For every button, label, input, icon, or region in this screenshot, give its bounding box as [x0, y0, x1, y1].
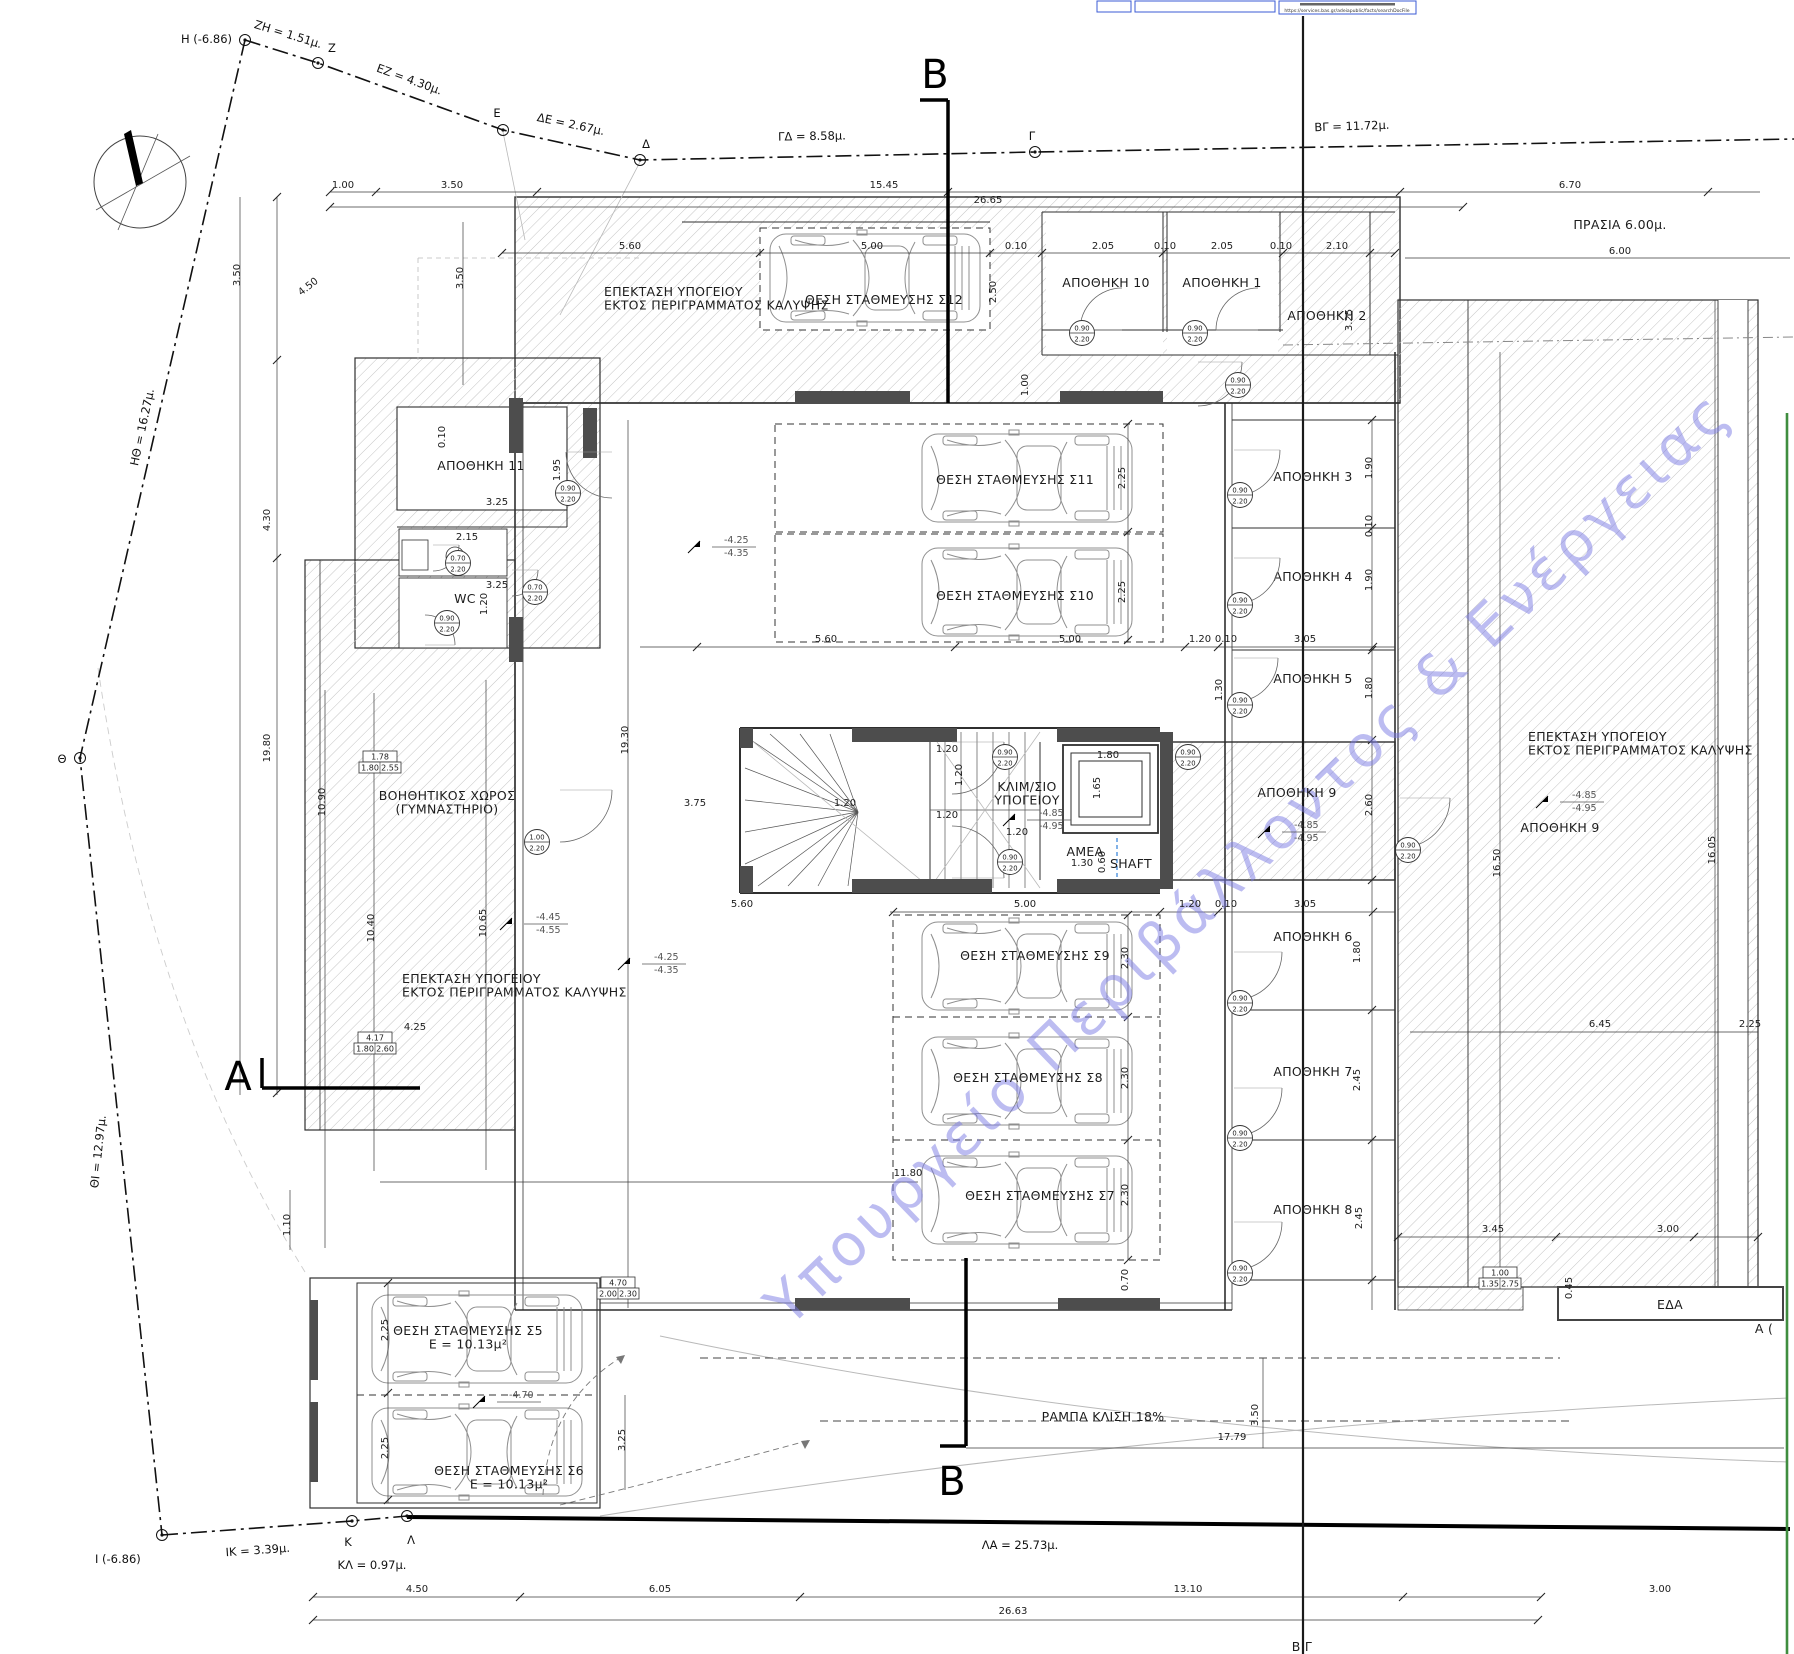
dim-text: 2.45	[1354, 1207, 1365, 1229]
level-bottom-value: -4.55	[536, 925, 561, 936]
room-label-line: ΑΠΟΘΗΚΗ 9	[1520, 820, 1599, 835]
room-label-line: ΑΠΟΘΗΚΗ 1	[1182, 275, 1261, 290]
door-width-value: 0.90	[997, 749, 1012, 757]
boundary-point-H: H (-6.86)	[181, 32, 251, 46]
door-width-value: 1.00	[529, 834, 544, 842]
window-length-value: 1.78	[371, 753, 389, 762]
dim-text: 1.20	[1006, 827, 1028, 838]
room-label-line: ΑΠΟΘΗΚΗ 7	[1273, 1064, 1352, 1079]
dim-text: 4.25	[404, 1022, 426, 1033]
door-width-value: 0.90	[1230, 377, 1245, 385]
boundary-point-dot	[501, 128, 504, 131]
boundary-point-Κ: Κ	[344, 1516, 357, 1550]
boundary-point-dot	[160, 1533, 163, 1536]
dim-text: 0.70	[1120, 1269, 1131, 1291]
dim-text: 1.20	[954, 764, 965, 786]
dim-text: 5.60	[619, 241, 641, 252]
room-label-apothiki-9-right: ΑΠΟΘΗΚΗ 9	[1520, 820, 1599, 835]
level-mark: -4.25-4.35	[688, 535, 756, 559]
dim-text: 11.80	[894, 1168, 923, 1179]
window-sill-value: 1.80	[356, 1045, 374, 1054]
boundary-la-thick	[407, 1517, 1790, 1529]
door-width-value: 0.90	[439, 615, 454, 623]
stamp-url[interactable]: https://services.bas.gr/adeiapublic/fact…	[1284, 8, 1409, 14]
dim-text: 26.65	[974, 195, 1003, 206]
door-width-value: 0.90	[1232, 1265, 1247, 1273]
door-height-value: 2.20	[1232, 608, 1247, 616]
section-letter: Α	[224, 1054, 252, 1100]
dim-text: 10.40	[366, 914, 377, 943]
room-label-line: Β Γ	[1292, 1639, 1312, 1654]
door-tag: 0.902.20	[1228, 1088, 1283, 1151]
door-swing-arc	[560, 790, 612, 842]
dim-text: 4.50	[296, 276, 320, 298]
dim-text: 3.25	[486, 497, 508, 508]
level-top-value: -4.85	[1039, 808, 1064, 819]
boundary-point-label: Κ	[344, 1535, 352, 1549]
room-label-line: ΑΠΟΘΗΚΗ 4	[1273, 569, 1352, 584]
door-height-value: 2.20	[1232, 708, 1247, 716]
dim-text: 3.50	[1250, 1404, 1261, 1426]
door-width-value: 0.90	[1232, 995, 1247, 1003]
dim-text: 3.00	[1649, 1584, 1671, 1595]
level-bottom-value: -4.95	[1572, 803, 1597, 814]
dim-text: 2.10	[1326, 241, 1348, 252]
dim-text: 2.25	[380, 1319, 391, 1341]
dim-text: 2.45	[1352, 1069, 1363, 1091]
room-label-line: ΑΠΟΘΗΚΗ 5	[1273, 671, 1352, 686]
ramp	[543, 1336, 1788, 1516]
dim-text: 1.30	[1071, 858, 1093, 869]
room-label-apothiki-5: ΑΠΟΘΗΚΗ 5	[1273, 671, 1352, 686]
level-bottom-value: -4.95	[1039, 821, 1064, 832]
room-label-line: ΕΚΤΟΣ ΠΕΡΙΓΡΑΜΜΑΤΟΣ ΚΑΛΥΨΗΣ	[402, 985, 627, 1000]
dim-text: 3.50	[441, 180, 463, 191]
dim-text: 26.63	[999, 1606, 1028, 1617]
room-label-line: ΑΜΕΑ	[1067, 844, 1104, 859]
room-label-line: ΑΠΟΘΗΚΗ 8	[1273, 1202, 1352, 1217]
room-label-line: ΡΑΜΠΑ ΚΛΙΣΗ 18%	[1042, 1409, 1165, 1424]
door-height-value: 2.20	[997, 760, 1012, 768]
dim-text: 2.25	[1117, 581, 1128, 603]
dim-text: 3.00	[1657, 1224, 1679, 1235]
dim-text: 1.20	[1189, 634, 1211, 645]
window-sill-value: 1.35	[1481, 1280, 1499, 1289]
stamp-title-text	[1300, 3, 1395, 6]
dim-text: 1.80	[1097, 750, 1119, 761]
dim-text: 1.00	[332, 180, 354, 191]
dim-text: 16.50	[1492, 849, 1503, 878]
dim-text: 4.30	[262, 509, 273, 531]
dim-text: 5.60	[731, 899, 753, 910]
dim-text: 5.60	[815, 634, 837, 645]
door-height-value: 2.20	[1074, 336, 1089, 344]
window-length-value: 4.17	[366, 1034, 384, 1043]
dim-text: 1.00	[1020, 374, 1031, 396]
room-label-apothiki-8: ΑΠΟΘΗΚΗ 8	[1273, 1202, 1352, 1217]
dim-text: 1.10	[282, 1214, 293, 1236]
door-height-value: 2.20	[529, 845, 544, 853]
room-label-line: ΥΠΟΓΕΙΟΥ	[993, 793, 1059, 808]
room-label-apothiki-4: ΑΠΟΘΗΚΗ 4	[1273, 569, 1352, 584]
dim-text: 3.45	[1482, 1224, 1504, 1235]
boundary-point-dot	[405, 1514, 408, 1517]
dim-text: 1.30	[1214, 679, 1225, 701]
dim-text: 6.70	[1559, 180, 1581, 191]
boundary-segment-label: ΔΕ = 2.67μ.	[536, 110, 606, 138]
door-tag: 0.902.20	[1228, 1222, 1283, 1286]
door-height-value: 2.20	[1232, 498, 1247, 506]
dim-text: 0.10	[437, 426, 448, 448]
room-label-line: ΑΠΟΘΗΚΗ 9	[1257, 785, 1336, 800]
boundary-segment-label: ΙΚ = 3.39μ.	[225, 1541, 290, 1559]
level-top-value: -4.25	[724, 535, 749, 546]
room-label-line: Α (	[1755, 1321, 1773, 1336]
dim-text: 0.10	[1005, 241, 1027, 252]
room-label-parking-s11: ΘΕΣΗ ΣΤΑΘΜΕΥΣΗΣ Σ11	[936, 472, 1094, 487]
dim-text: 1.20	[1179, 899, 1201, 910]
door-height-value: 2.20	[1230, 388, 1245, 396]
boundary-segment-label: ΘΙ = 12.97μ.	[87, 1114, 109, 1188]
boundary-point-label: Θ	[57, 752, 66, 766]
room-label-apothiki-3: ΑΠΟΘΗΚΗ 3	[1273, 469, 1352, 484]
door-width-value: 0.90	[1232, 487, 1247, 495]
level-bottom-value: -4.95	[1294, 833, 1319, 844]
boundary-segment-label: ΓΔ = 8.58μ.	[778, 128, 846, 143]
room-label-line: ΘΕΣΗ ΣΤΑΘΜΕΥΣΗΣ Σ7	[965, 1188, 1115, 1203]
door-width-value: 0.90	[1232, 697, 1247, 705]
section-letter: Β	[921, 52, 948, 98]
dim-text: 3.50	[232, 264, 243, 286]
room-label-parking-s10: ΘΕΣΗ ΣΤΑΘΜΕΥΣΗΣ Σ10	[936, 588, 1094, 603]
boundary-point-label: Z	[328, 41, 336, 55]
door-height-value: 2.20	[1180, 760, 1195, 768]
room-label-wc: WC	[454, 591, 476, 606]
room-label-line: ΘΕΣΗ ΣΤΑΘΜΕΥΣΗΣ Σ9	[960, 948, 1110, 963]
dim-text: 5.00	[1059, 634, 1081, 645]
dim-text: 0.45	[1564, 1277, 1575, 1299]
dim-text: 19.80	[262, 734, 273, 763]
window-height-value: 2.75	[1501, 1280, 1519, 1289]
room-label-eda: ΕΔΑ	[1657, 1297, 1683, 1312]
door-width-value: 0.90	[1232, 597, 1247, 605]
door-tag: 0.902.20	[1228, 450, 1281, 508]
dim-text: 1.20	[479, 593, 490, 615]
dim-text: 2.05	[1211, 241, 1233, 252]
room-label-rampa: ΡΑΜΠΑ ΚΛΙΣΗ 18%	[1042, 1409, 1165, 1424]
dim-text: 3.25	[617, 1429, 628, 1451]
room-label-line: ΑΠΟΘΗΚΗ 2	[1287, 308, 1366, 323]
door-height-value: 2.20	[1002, 865, 1017, 873]
dim-text: 0.10	[1270, 241, 1292, 252]
dim-text: 2.25	[1117, 467, 1128, 489]
dim-text: 6.45	[1589, 1019, 1611, 1030]
window-height-value: 2.30	[619, 1290, 637, 1299]
floor-plan-drawing: https://services.bas.gr/adeiapublic/fact…	[0, 0, 1794, 1654]
boundary-point-dot	[78, 756, 81, 759]
dim-text: 0.10	[1154, 241, 1176, 252]
door-width-value: 0.90	[1187, 325, 1202, 333]
boundary-segment-label: ΚΛ = 0.97μ.	[338, 1558, 407, 1572]
boundary-segment-label: EZ = 4.30μ.	[375, 61, 444, 98]
door-width-value: 0.70	[527, 584, 542, 592]
dim-text: 6.00	[1609, 246, 1631, 257]
boundary-point-dot	[316, 61, 319, 64]
stamp-box-mid	[1135, 1, 1275, 12]
boundary-segment-label: ΗΘ = 16.27μ.	[127, 387, 157, 467]
stamp-box-small	[1097, 1, 1131, 12]
dim-text: 5.00	[1014, 899, 1036, 910]
window-tag: 4.171.802.60	[354, 1032, 396, 1054]
room-label-klimakostasio: ΚΛΙΜ/ΣΙΟΥΠΟΓΕΙΟΥ	[993, 779, 1059, 808]
dim-text: 2.25	[380, 1437, 391, 1459]
room-label-apothiki-11: ΑΠΟΘΗΚΗ 11	[437, 458, 525, 473]
door-width-value: 0.90	[1002, 854, 1017, 862]
dim-text: 3.50	[455, 267, 466, 289]
door-width-value: 0.90	[560, 485, 575, 493]
boundary-segment-label: ZH = 1.51μ.	[253, 17, 324, 51]
door-height-value: 2.20	[560, 496, 575, 504]
door-height-value: 2.20	[1232, 1141, 1247, 1149]
room-label-apothiki-9-core: ΑΠΟΘΗΚΗ 9	[1257, 785, 1336, 800]
dim-text: 1.20	[936, 810, 958, 821]
dim-text: 2.25	[1739, 1019, 1761, 1030]
door-height-value: 2.20	[1232, 1276, 1247, 1284]
dim-text: 17.79	[1218, 1432, 1247, 1443]
section-letter: Β	[938, 1459, 965, 1505]
boundary-point-dot	[350, 1519, 353, 1522]
level-top-value: -4.85	[1294, 820, 1319, 831]
boundary-point-label: Λ	[407, 1533, 415, 1547]
boundary-segment-label: ΒΓ = 11.72μ.	[1314, 118, 1390, 135]
room-label-line: ΑΠΟΘΗΚΗ 10	[1062, 275, 1150, 290]
door-height-value: 2.20	[439, 626, 454, 634]
door-width-value: 0.90	[1400, 842, 1415, 850]
dim-text: 1.90	[1364, 457, 1375, 479]
dim-text: 1.20	[834, 798, 856, 809]
dim-text: 2.15	[456, 532, 478, 543]
dim-text: 3.25	[486, 580, 508, 591]
door-height-value: 2.20	[527, 595, 542, 603]
room-label-apothiki-10: ΑΠΟΘΗΚΗ 10	[1062, 275, 1150, 290]
room-label-gym: ΒΟΗΘΗΤΙΚΟΣ ΧΩΡΟΣ(ΓΥΜΝΑΣΤΗΡΙΟ)	[379, 788, 515, 817]
dim-text: 0.10	[1215, 899, 1237, 910]
level-top-value: -4.85	[1572, 790, 1597, 801]
room-label-label-a-partial: Α (	[1755, 1321, 1773, 1336]
room-label-line: ΘΕΣΗ ΣΤΑΘΜΕΥΣΗΣ Σ8	[953, 1070, 1103, 1085]
dim-text: 4.50	[406, 1584, 428, 1595]
room-label-label-bg-partial: Β Γ	[1292, 1639, 1312, 1654]
room-label-parking-s5: ΘΕΣΗ ΣΤΑΘΜΕΥΣΗΣ Σ5Ε = 10.13μ²	[393, 1323, 543, 1352]
door-height-value: 2.20	[450, 566, 465, 574]
room-label-line: Ε = 10.13μ²	[470, 1477, 548, 1492]
door-tag: 0.902.20	[1228, 952, 1283, 1016]
room-label-apothiki-7: ΑΠΟΘΗΚΗ 7	[1273, 1064, 1352, 1079]
room-label-line: ΘΕΣΗ ΣΤΑΘΜΕΥΣΗΣ Σ10	[936, 588, 1094, 603]
dim-text: 10.65	[478, 909, 489, 938]
door-width-value: 0.90	[1180, 749, 1195, 757]
room-label-line: ΠΡΑΣΙΑ 6.00μ.	[1573, 217, 1666, 232]
room-label-line: ΕΚΤΟΣ ΠΕΡΙΓΡΑΜΜΑΤΟΣ ΚΑΛΥΨΗΣ	[1528, 743, 1753, 758]
door-height-value: 2.20	[1187, 336, 1202, 344]
room-label-line: Ε = 10.13μ²	[429, 1337, 507, 1352]
boundary-point-dot	[1033, 150, 1036, 153]
boundary-point-Δ: Δ	[635, 137, 651, 166]
room-label-line: ΘΕΣΗ ΣΤΑΘΜΕΥΣΗΣ Σ12	[805, 292, 963, 307]
boundary-point-Γ: Γ	[1029, 129, 1041, 158]
dim-text: 1.95	[552, 459, 563, 481]
dim-text: 0.10	[1215, 634, 1237, 645]
dim-text: 10.90	[317, 788, 328, 817]
dim-text: 15.45	[870, 180, 899, 191]
dim-text: 1.80	[1352, 941, 1363, 963]
dim-text: 6.05	[649, 1584, 671, 1595]
door-swing-arc	[952, 826, 1004, 878]
dim-text: 1.20	[936, 744, 958, 755]
room-label-apothiki-6: ΑΠΟΘΗΚΗ 6	[1273, 929, 1352, 944]
window-tag: 1.001.352.75	[1479, 1267, 1521, 1289]
room-label-shaft: SHAFT	[1110, 856, 1152, 871]
right-zone-white-strip	[1718, 300, 1748, 1287]
room-label-line: ΕΔΑ	[1657, 1297, 1683, 1312]
room-label-line: ΑΠΟΘΗΚΗ 3	[1273, 469, 1352, 484]
boundary-point-Ι: Ι (-6.86)	[95, 1530, 168, 1567]
boundary-point-dot	[638, 158, 641, 161]
dim-text: 2.30	[1120, 947, 1131, 969]
boundary-point-label: H (-6.86)	[181, 32, 232, 46]
window-height-value: 2.60	[376, 1045, 394, 1054]
room-label-parking-s7: ΘΕΣΗ ΣΤΑΘΜΕΥΣΗΣ Σ7	[965, 1188, 1115, 1203]
boundary-point-label: Δ	[642, 137, 650, 151]
door-tag: 0.902.20	[1228, 658, 1279, 718]
dim-text: 3.05	[1294, 899, 1316, 910]
dim-text: 2.60	[1364, 794, 1375, 816]
room-label-line: ΕΚΤΟΣ ΠΕΡΙΓΡΑΜΜΑΤΟΣ ΚΑΛΥΨΗΣ	[604, 298, 829, 313]
hatch-patch	[1398, 1287, 1523, 1310]
door-tag: 0.902.20	[1228, 558, 1281, 618]
boundary-point-label: Ι (-6.86)	[95, 1552, 141, 1566]
level-bottom-value: -4.35	[654, 965, 679, 976]
boundary-point-label: Γ	[1029, 129, 1036, 143]
window-length-value: 4.70	[609, 1279, 627, 1288]
level-top-value: -4.70	[509, 1390, 534, 1401]
dim-text: 1.90	[1364, 569, 1375, 591]
dim-text: 19.30	[620, 726, 631, 755]
room-label-apothiki-2: ΑΠΟΘΗΚΗ 2	[1287, 308, 1366, 323]
dim-text: 2.05	[1092, 241, 1114, 252]
room-label-parking-s9: ΘΕΣΗ ΣΤΑΘΜΕΥΣΗΣ Σ9	[960, 948, 1110, 963]
dim-text: 2.30	[1120, 1067, 1131, 1089]
window-sill-value: 2.00	[599, 1290, 617, 1299]
room-label-line: ΘΕΣΗ ΣΤΑΘΜΕΥΣΗΣ Σ11	[936, 472, 1094, 487]
room-label-apothiki-1: ΑΠΟΘΗΚΗ 1	[1182, 275, 1261, 290]
dim-text: 1.65	[1092, 777, 1103, 799]
room-label-parking-s12: ΘΕΣΗ ΣΤΑΘΜΕΥΣΗΣ Σ12	[805, 292, 963, 307]
door-tag: 0.902.20	[1176, 745, 1201, 770]
dim-text: 16.05	[1707, 836, 1718, 865]
door-height-value: 2.20	[1232, 1006, 1247, 1014]
window-tag: 4.702.002.30	[597, 1277, 639, 1299]
room-label-line: WC	[454, 591, 476, 606]
room-label-amea: ΑΜΕΑ	[1067, 844, 1104, 859]
dim-text: 3.75	[684, 798, 706, 809]
room-label-parking-s6: ΘΕΣΗ ΣΤΑΘΜΕΥΣΗΣ Σ6Ε = 10.13μ²	[434, 1463, 584, 1492]
dim-text: 13.10	[1174, 1584, 1203, 1595]
room-label-line: (ΓΥΜΝΑΣΤΗΡΙΟ)	[396, 802, 499, 817]
level-mark: -4.70	[473, 1390, 541, 1408]
room-label-line: SHAFT	[1110, 856, 1152, 871]
north-compass	[94, 130, 190, 230]
dim-text: 5.00	[861, 241, 883, 252]
window-height-value: 2.55	[381, 764, 399, 773]
dim-text: 2.30	[1120, 1184, 1131, 1206]
room-label-line: ΑΠΟΘΗΚΗ 6	[1273, 929, 1352, 944]
compass-needle	[124, 130, 143, 186]
boundary-point-label: E	[493, 106, 500, 120]
boundary-point-dot	[243, 38, 246, 41]
level-bottom-value: -4.35	[724, 548, 749, 559]
door-tag: 1.002.20	[525, 790, 613, 855]
level-top-value: -4.25	[654, 952, 679, 963]
dim-text: 2.50	[988, 281, 999, 303]
window-tag: 1.781.802.55	[359, 751, 401, 773]
dim-text: 0.10	[1364, 515, 1375, 537]
door-width-value: 0.90	[1074, 325, 1089, 333]
dim-text: 3.05	[1294, 634, 1316, 645]
dim-text: 1.80	[1364, 677, 1375, 699]
door-height-value: 2.20	[1400, 853, 1415, 861]
room-label-prasia: ΠΡΑΣΙΑ 6.00μ.	[1573, 217, 1666, 232]
room-label-parking-s8: ΘΕΣΗ ΣΤΑΘΜΕΥΣΗΣ Σ8	[953, 1070, 1103, 1085]
window-length-value: 1.00	[1491, 1269, 1509, 1278]
window-sill-value: 1.80	[361, 764, 379, 773]
door-width-value: 0.70	[450, 555, 465, 563]
room-label-line: ΑΠΟΘΗΚΗ 11	[437, 458, 525, 473]
boundary-segment-label: ΛΑ = 25.73μ.	[982, 1538, 1059, 1552]
permit-stamp: https://services.bas.gr/adeiapublic/fact…	[1097, 1, 1416, 14]
door-width-value: 0.90	[1232, 1130, 1247, 1138]
level-top-value: -4.45	[536, 912, 561, 923]
room-label-epektasi-left: ΕΠΕΚΤΑΣΗ ΥΠΟΓΕΙΟΥΕΚΤΟΣ ΠΕΡΙΓΡΑΜΜΑΤΟΣ ΚΑΛ…	[402, 971, 627, 1000]
